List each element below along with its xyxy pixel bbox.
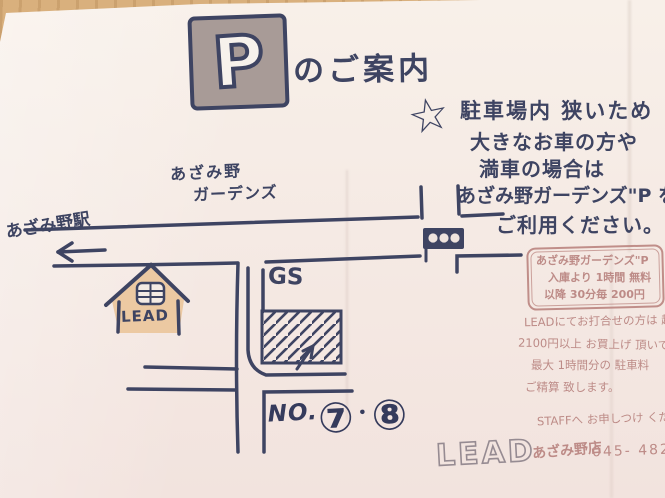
brand-logo: LEAD bbox=[435, 433, 536, 473]
house-window-icon bbox=[137, 283, 164, 304]
separator-dot: ・ bbox=[353, 402, 372, 424]
parking-number-8: ⑧ bbox=[370, 389, 408, 440]
parking-no-prefix: NO. bbox=[267, 399, 318, 428]
parking-area-hatch bbox=[262, 311, 341, 363]
parking-number-label: NO.⑦・⑧ bbox=[267, 389, 409, 445]
note-line: ご精算 致します。 bbox=[525, 379, 620, 395]
note-line: 最大 1時間分の 駐車料 bbox=[531, 357, 649, 373]
station-arrow-icon bbox=[58, 243, 105, 261]
fee-box-line: 入庫より 1時間 無料 bbox=[548, 269, 651, 285]
photo-of-hand-drawn-map: P のご案内 ☆ 駐車場内 狭いため 大きなお車の方や 満車の場合は あざみ野ガ… bbox=[0, 0, 665, 498]
fee-box-line: 以降 30分毎 200円 bbox=[544, 286, 645, 302]
house-lead-label: LEAD bbox=[121, 306, 169, 326]
note-line: LEADにてお打合せの方は 超 bbox=[524, 312, 665, 331]
phone-number: 045- 482 bbox=[592, 442, 665, 461]
note-line: 2100円以上 お買上げ 頂いて bbox=[518, 335, 665, 354]
fee-box-line: あざみ野ガーデンズ"P bbox=[536, 252, 649, 268]
parking-number-7: ⑦ bbox=[317, 392, 355, 443]
gardens-label-line2: ガーデンズ bbox=[193, 179, 278, 206]
gas-station-label: GS bbox=[268, 263, 304, 290]
